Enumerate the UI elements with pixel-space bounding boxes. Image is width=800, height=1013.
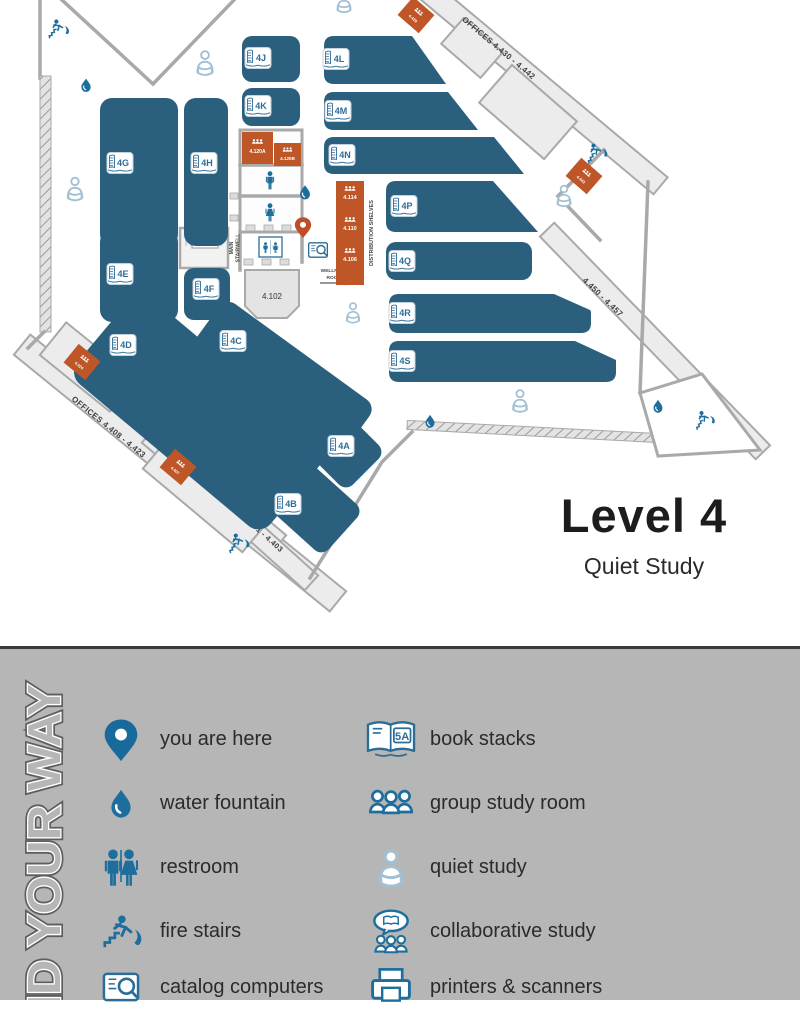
legend-item-fire-stairs: fire stairs: [92, 905, 241, 957]
svg-text:4J: 4J: [256, 53, 266, 63]
legend-item-restroom: restroom: [92, 841, 239, 893]
legend-item-you-are-here: you are here: [92, 713, 272, 765]
main-stairwell-label-1: MAIN: [229, 241, 235, 254]
collaborative-study-icon: [362, 906, 420, 956]
svg-text:4L: 4L: [334, 54, 345, 64]
water-fountain-icon: [426, 415, 435, 428]
quiet-study-icon: [362, 844, 420, 890]
legend-label: printers & scanners: [430, 976, 602, 999]
map-title-block: Level 4 Quiet Study: [498, 488, 790, 580]
you-are-here-pin-icon: [295, 217, 311, 238]
legend-label: group study room: [430, 792, 586, 815]
svg-text:5A: 5A: [395, 731, 409, 743]
printers-scanners-icon: [362, 964, 420, 1010]
find-your-way-vertical-text: FIND YOUR WAY FIND YOUR WAY: [6, 649, 86, 1000]
legend-item-printers-scanners: printers & scanners: [362, 961, 602, 1013]
group-room-label: 4.120A: [249, 149, 266, 155]
quiet-study-icon: [68, 178, 83, 201]
svg-text:4P: 4P: [401, 201, 412, 211]
quiet-study-icon: [197, 51, 212, 75]
legend-item-book-stacks: 5A book stacks: [362, 713, 536, 765]
room-4102: 4.102: [245, 270, 299, 318]
group-room-label: 4.106: [343, 257, 357, 263]
legend-item-collaborative-study: collaborative study: [362, 905, 596, 957]
water-fountain-icon: [92, 780, 150, 826]
fire-stairs-icon: [47, 18, 70, 39]
svg-text:4K: 4K: [255, 101, 267, 111]
legend-item-quiet-study: quiet study: [362, 841, 527, 893]
main-stairwell-label-2: STAIRWELL: [236, 234, 242, 263]
svg-text:4E: 4E: [117, 269, 128, 279]
svg-text:4S: 4S: [399, 356, 410, 366]
svg-text:4G: 4G: [117, 158, 129, 168]
group-room-label: 4.120B: [280, 156, 295, 161]
legend-label: water fountain: [160, 792, 286, 815]
quiet-study-icon: [347, 303, 360, 323]
legend-item-group-study-room: group study room: [362, 777, 586, 829]
fire-stairs-icon: [92, 908, 150, 954]
svg-text:4Q: 4Q: [399, 256, 411, 266]
quiet-study-icon: [557, 186, 570, 207]
page-title: Level 4: [498, 488, 790, 543]
legend-item-catalog-computers: catalog computers: [92, 961, 323, 1013]
legend-label: fire stairs: [160, 920, 241, 943]
legend-label: catalog computers: [160, 976, 323, 999]
svg-text:4H: 4H: [201, 158, 213, 168]
you-are-here-pin-icon: [92, 716, 150, 762]
legend-label: quiet study: [430, 856, 527, 879]
svg-text:4A: 4A: [338, 441, 350, 451]
svg-text:4D: 4D: [120, 340, 132, 350]
legend-label: restroom: [160, 856, 239, 879]
room-4102-label: 4.102: [262, 292, 283, 301]
restroom-sign: [259, 237, 282, 257]
group-room-label: 4.114: [343, 195, 357, 201]
svg-text:4C: 4C: [230, 336, 242, 346]
legend-panel: you are here water fountain restroom fir…: [0, 646, 800, 1000]
svg-text:4B: 4B: [285, 499, 297, 509]
legend-label: you are here: [160, 728, 272, 751]
svg-text:4N: 4N: [339, 150, 351, 160]
svg-text:4R: 4R: [399, 308, 411, 318]
distribution-shelves-label: DISTRIBUTION SHELVES: [369, 200, 375, 266]
legend-label: collaborative study: [430, 920, 596, 943]
book-stacks-icon: 5A: [362, 717, 420, 761]
page-subtitle: Quiet Study: [498, 553, 790, 580]
svg-text:4M: 4M: [335, 106, 348, 116]
group-room-label: 4.110: [343, 226, 356, 232]
svg-text:FIND YOUR WAY: FIND YOUR WAY: [18, 684, 70, 1000]
catalog-computers-icon: [309, 243, 328, 257]
svg-text:4F: 4F: [204, 284, 215, 294]
legend-item-water-fountain: water fountain: [92, 777, 286, 829]
legend-label: book stacks: [430, 728, 536, 751]
water-fountain-icon: [81, 79, 90, 92]
quiet-study-icon: [337, 0, 350, 12]
quiet-study-icon: [513, 390, 527, 412]
catalog-computers-icon: [92, 964, 150, 1010]
restroom-icon: [92, 844, 150, 890]
group-study-room-icon: [362, 780, 420, 826]
